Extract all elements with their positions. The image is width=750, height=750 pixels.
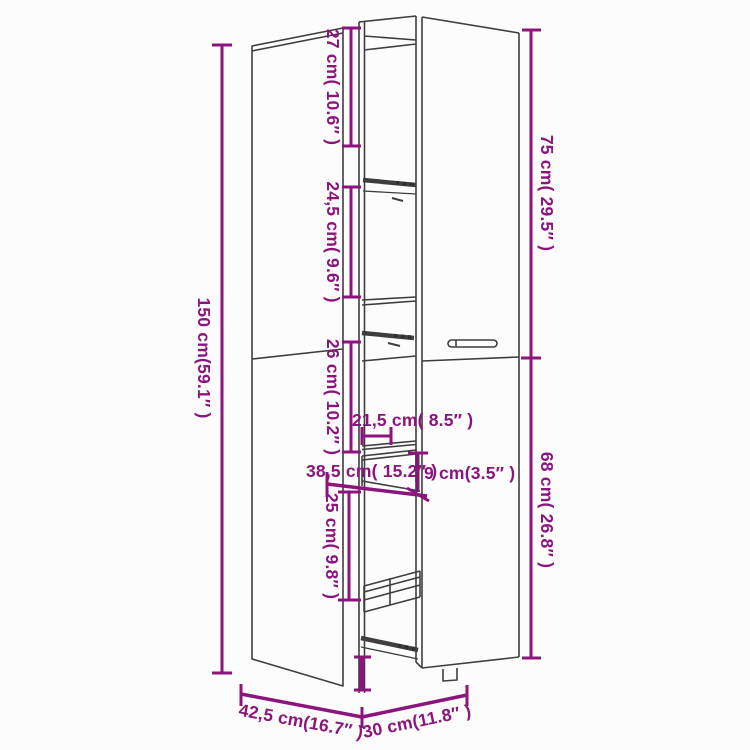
- dim-line-plinth: [354, 656, 371, 691]
- dim-label-27cm: 27 cm( 10.6″ ): [323, 29, 343, 145]
- pullout-column: [359, 16, 420, 693]
- dim-line-27cm: [342, 28, 361, 146]
- dim-line-total-height: [212, 45, 232, 673]
- dimension-lines: [212, 28, 541, 728]
- dim-label-9cm: 9 cm(3.5″ ): [424, 463, 515, 483]
- dim-label-75cm: 75 cm( 29.5″ ): [537, 135, 557, 251]
- dim-label-68cm: 68 cm( 26.8″ ): [537, 452, 557, 568]
- dim-label-26cm: 26 cm( 10.2″ ): [323, 339, 343, 455]
- cabinet-dimension-diagram: 150 cm(59.1″ ) 27 cm( 10.6″ ) 24,5 cm( 9…: [0, 0, 750, 750]
- dim-line-24-5cm: [342, 187, 361, 297]
- cabinet-outline: [252, 16, 519, 693]
- door-handle: [448, 340, 497, 347]
- dimension-labels: 150 cm(59.1″ ) 27 cm( 10.6″ ) 24,5 cm( 9…: [194, 29, 557, 743]
- cabinet-foot: [443, 668, 457, 681]
- dim-label-25cm: 25 cm( 9.8″ ): [322, 493, 342, 599]
- dim-label-38-5cm: 38,5 cm( 15.2″ ): [306, 461, 437, 481]
- right-door-panel: [416, 16, 519, 681]
- dim-line-26cm: [342, 342, 361, 452]
- dim-label-total-height: 150 cm(59.1″ ): [194, 297, 214, 418]
- dim-label-21-5cm: 21,5 cm( 8.5″ ): [352, 410, 473, 430]
- diagram-canvas: 150 cm(59.1″ ) 27 cm( 10.6″ ) 24,5 cm( 9…: [0, 0, 750, 750]
- dim-label-24-5cm: 24,5 cm( 9.6″ ): [323, 181, 343, 302]
